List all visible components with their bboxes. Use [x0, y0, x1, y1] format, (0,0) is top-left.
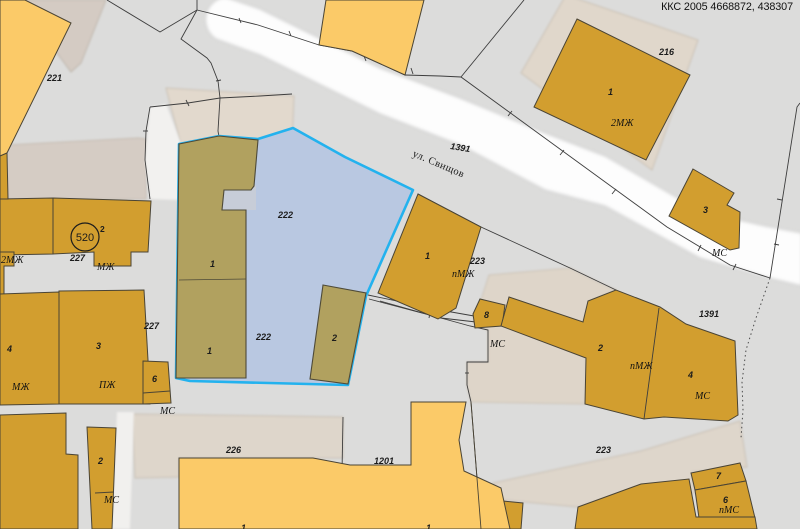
svg-text:МС: МС [711, 248, 727, 259]
svg-text:1201: 1201 [374, 456, 394, 466]
svg-text:2: 2 [97, 456, 103, 466]
svg-text:2: 2 [597, 343, 603, 353]
svg-text:пМЖ: пМЖ [452, 269, 475, 280]
svg-text:3: 3 [703, 205, 708, 215]
svg-text:4: 4 [687, 370, 693, 380]
svg-text:МС: МС [103, 495, 119, 506]
svg-text:2: 2 [100, 224, 105, 234]
svg-text:222: 222 [277, 210, 293, 220]
svg-text:4: 4 [6, 344, 12, 354]
svg-text:2МЖ: 2МЖ [1, 255, 24, 266]
svg-text:223: 223 [595, 445, 611, 455]
svg-text:МС: МС [694, 391, 710, 402]
svg-text:МС: МС [489, 339, 505, 350]
svg-text:пМС: пМС [719, 505, 739, 516]
svg-text:222: 222 [255, 332, 271, 342]
svg-text:227: 227 [69, 253, 86, 263]
svg-text:221: 221 [46, 73, 62, 83]
svg-text:1: 1 [207, 346, 212, 356]
svg-text:ККС 2005 4668872, 438307: ККС 2005 4668872, 438307 [661, 1, 793, 13]
svg-text:1: 1 [608, 87, 613, 97]
svg-text:1: 1 [241, 523, 246, 529]
svg-text:МЖ: МЖ [11, 382, 30, 393]
svg-text:2: 2 [331, 333, 337, 343]
svg-text:227: 227 [143, 321, 160, 331]
svg-text:МЖ: МЖ [96, 262, 115, 273]
svg-text:1: 1 [210, 259, 215, 269]
svg-text:1: 1 [425, 251, 430, 261]
svg-text:МС: МС [159, 406, 175, 417]
svg-text:ПЖ: ПЖ [98, 380, 116, 391]
svg-text:223: 223 [469, 256, 485, 266]
svg-text:1: 1 [426, 523, 431, 529]
svg-text:2МЖ: 2МЖ [611, 118, 634, 129]
svg-text:1391: 1391 [699, 309, 719, 319]
svg-text:3: 3 [96, 341, 101, 351]
svg-text:520: 520 [76, 232, 94, 244]
svg-text:8: 8 [484, 310, 489, 320]
svg-text:216: 216 [658, 47, 675, 57]
svg-text:226: 226 [225, 445, 242, 455]
svg-text:пМЖ: пМЖ [630, 361, 653, 372]
